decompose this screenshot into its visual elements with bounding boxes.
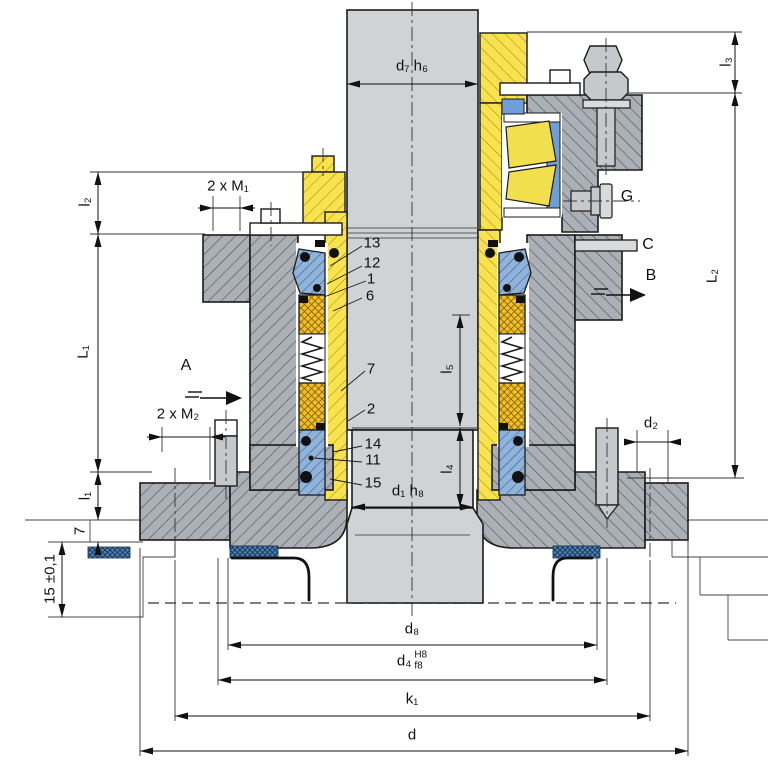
bearing-race-bottom xyxy=(504,208,560,217)
oring xyxy=(514,252,524,262)
drive-pin xyxy=(299,296,308,303)
dim-L2-label: L₂ xyxy=(705,269,720,283)
flow-arrow-a xyxy=(226,391,242,405)
dim-d7-label: d₇ h₆ xyxy=(396,59,428,74)
dim-d8-label: d₈ xyxy=(405,622,420,637)
gland-ear-left xyxy=(203,235,250,302)
dim-m2-label: 2 x M₂ xyxy=(157,407,200,422)
oring-sleeve-right xyxy=(485,248,495,258)
dim-l1-label: l₁ xyxy=(78,492,93,500)
shaft-hub xyxy=(347,508,483,603)
oring xyxy=(301,436,311,446)
dim-d4-sup: H8 xyxy=(414,651,427,662)
cover-stud-tab xyxy=(550,70,570,83)
bearing-seal-blue xyxy=(502,99,524,114)
callout-13: 13 xyxy=(364,236,381,251)
gasket-outer-left xyxy=(88,547,130,558)
leader-dot xyxy=(309,456,314,461)
oring-gland-left xyxy=(315,240,325,247)
washer xyxy=(583,100,630,108)
dim-m1-label: 2 x M₁ xyxy=(207,179,249,194)
callout-11: 11 xyxy=(365,453,381,468)
callout-1: 1 xyxy=(367,272,375,287)
flange-ear-left xyxy=(140,483,230,540)
technical-drawing-page: d₇ h₆ l₃ l₂ 2 x M₁ L₁ A 2 x M₂ B C G L₂ … xyxy=(0,0,768,768)
port-g-label: G xyxy=(621,189,633,205)
shaft xyxy=(347,10,483,603)
oring xyxy=(300,252,310,262)
dim-lip7-label: 7 xyxy=(73,527,88,535)
flow-arrow-b xyxy=(630,288,646,302)
dim-d1-label: d₁ h₈ xyxy=(392,484,424,499)
callout-2: 2 xyxy=(367,402,375,417)
flange-ear-right xyxy=(645,483,688,540)
oring xyxy=(313,284,321,292)
dim-l3-label: l₃ xyxy=(719,57,734,66)
dim-d4-base: d₄ xyxy=(397,654,411,669)
oring xyxy=(513,436,523,446)
oring xyxy=(503,284,511,292)
dim-tol15-label: 15 ±0,1 xyxy=(43,554,58,604)
dim-d4-sub: f8 xyxy=(414,661,427,672)
drive-pin xyxy=(499,423,508,430)
taper-roller-upper xyxy=(506,121,556,168)
locknut xyxy=(584,46,622,74)
oring-sleeve-left xyxy=(329,248,339,258)
pin-c xyxy=(575,240,637,251)
sleeve-right-upper xyxy=(480,103,502,230)
dim-k1-label: k₁ xyxy=(406,692,419,707)
dim-l4-label: l₄ xyxy=(440,464,455,473)
oring xyxy=(300,471,312,483)
dim-d2-label: d₂ xyxy=(644,416,658,431)
callout-15: 15 xyxy=(365,476,382,491)
gasket-right xyxy=(553,546,600,558)
taper-roller-lower xyxy=(506,165,556,206)
callout-7: 7 xyxy=(367,362,375,377)
port-a-label: A xyxy=(181,358,192,374)
dim-l2-label: l₂ xyxy=(78,197,93,206)
port-c-label: C xyxy=(642,237,654,253)
seal-face-lower-left xyxy=(299,383,325,430)
dim-d-label: d xyxy=(408,728,416,743)
gland-plate-left xyxy=(250,223,342,235)
section-drawing-canvas xyxy=(0,0,768,768)
drive-pin xyxy=(516,296,525,303)
callout-6: 6 xyxy=(366,289,374,304)
m1-stud-tab xyxy=(261,209,280,223)
dim-l5-label: l₅ xyxy=(440,364,455,373)
gasket-left xyxy=(230,546,278,558)
dim-L1-label: L₁ xyxy=(76,345,91,358)
callout-14: 14 xyxy=(365,437,382,452)
seal-face-lower-right xyxy=(499,383,525,430)
oring-gland-right xyxy=(488,240,498,247)
dim-d4-label: d₄ H8 f8 xyxy=(397,651,427,672)
callout-12: 12 xyxy=(364,256,381,271)
port-b-label: B xyxy=(646,268,657,284)
dim-d4-fit: H8 f8 xyxy=(414,651,427,672)
oring xyxy=(512,471,524,483)
drive-pin xyxy=(316,423,325,430)
bearing-cover-plate xyxy=(500,83,580,95)
